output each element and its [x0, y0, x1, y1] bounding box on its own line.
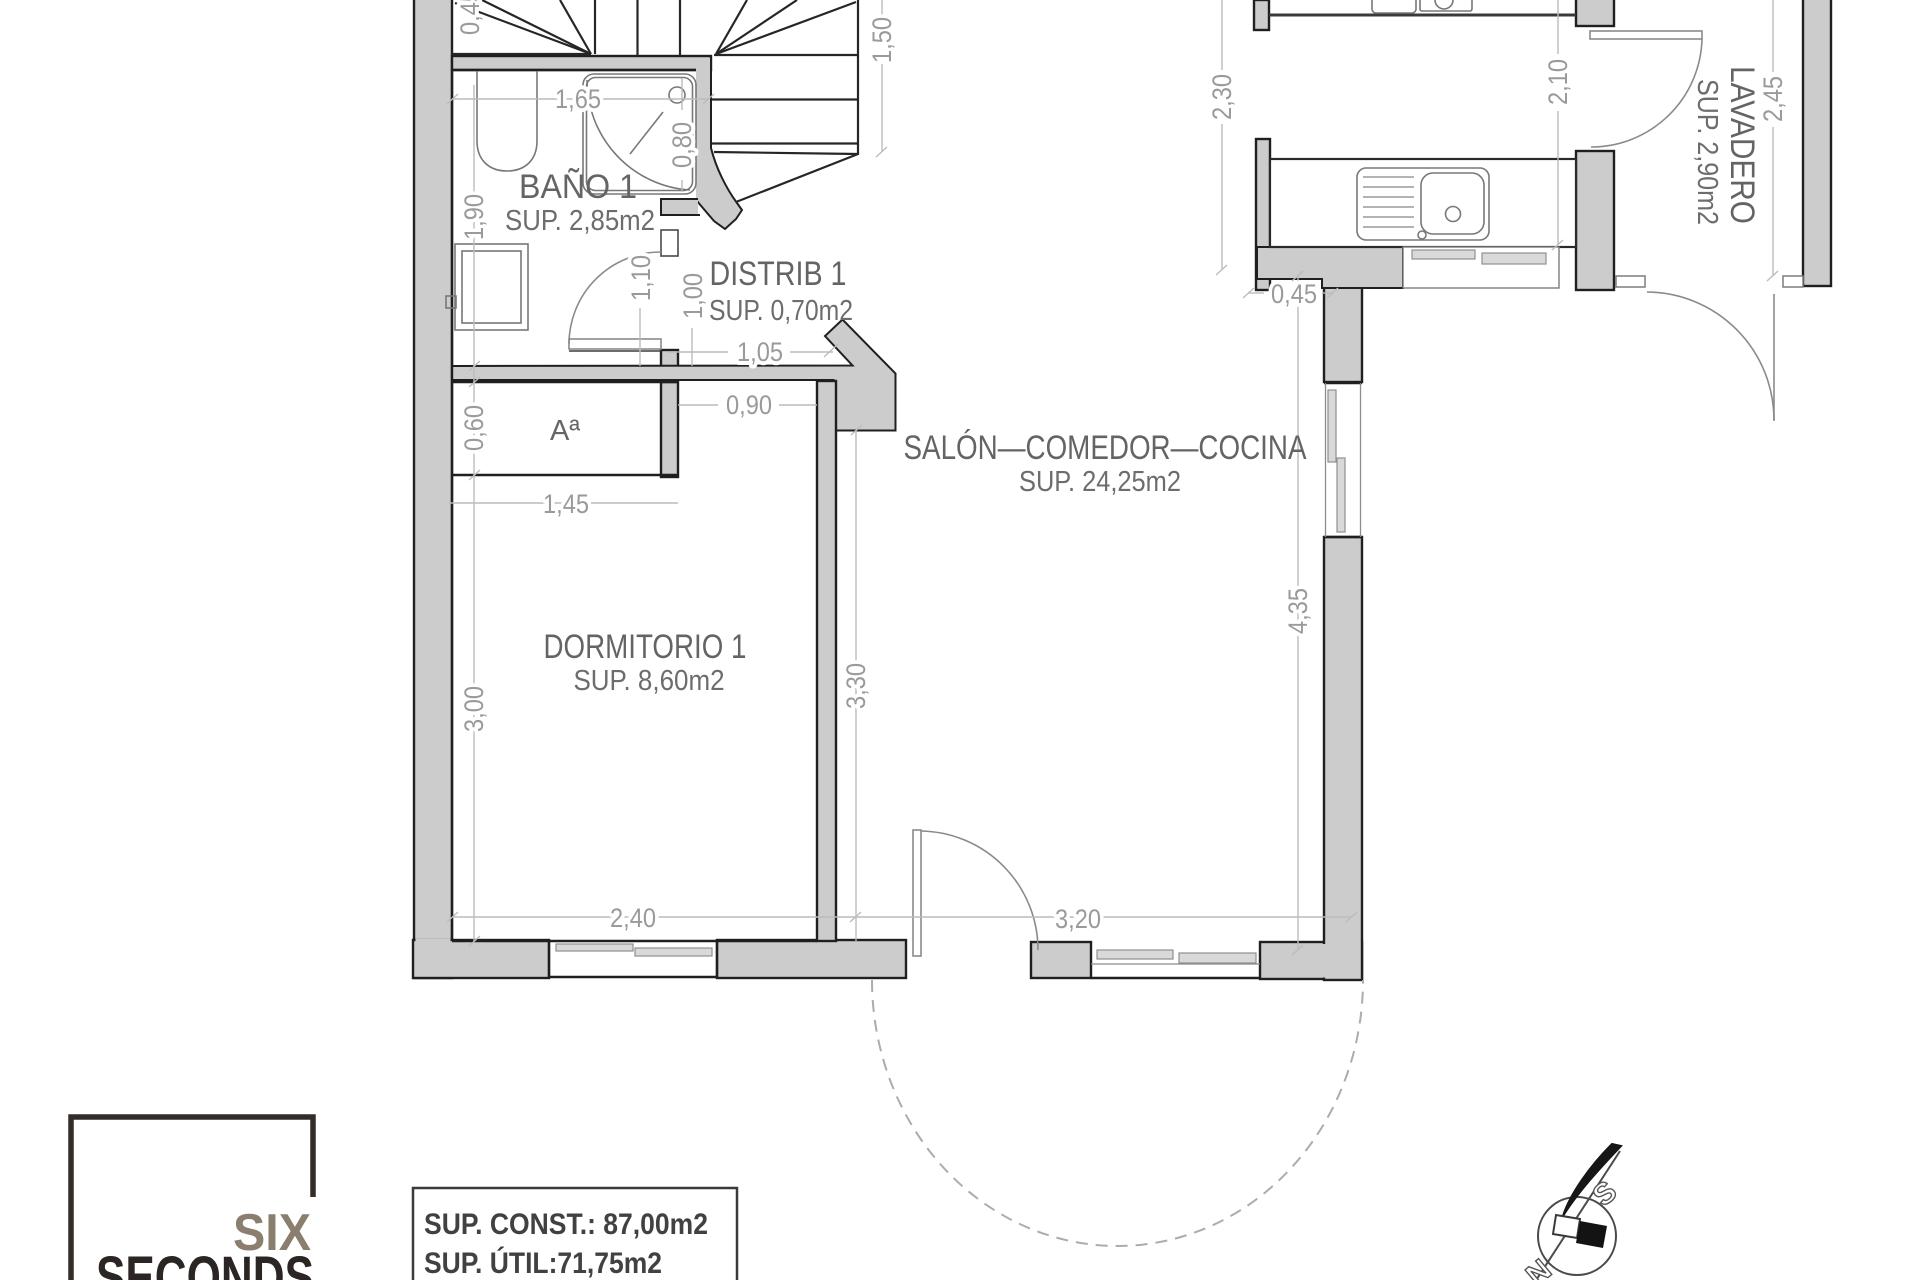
svg-text:SUP. 2,90m2: SUP. 2,90m2 — [1691, 79, 1723, 225]
svg-text:0,45: 0,45 — [1271, 279, 1317, 309]
svg-text:BAÑO 1: BAÑO 1 — [519, 168, 637, 206]
svg-text:SUP. ÚTIL:71,75m2: SUP. ÚTIL:71,75m2 — [424, 1246, 662, 1280]
svg-text:1,65: 1,65 — [555, 84, 601, 114]
svg-text:SUP. 24,25m2: SUP. 24,25m2 — [1019, 466, 1181, 498]
svg-text:SUP. 2,85m2: SUP. 2,85m2 — [505, 205, 655, 237]
svg-text:2,40: 2,40 — [610, 903, 656, 933]
svg-text:1,45: 1,45 — [543, 489, 589, 519]
svg-text:0,60: 0,60 — [459, 405, 489, 451]
svg-text:1,05: 1,05 — [737, 337, 783, 367]
svg-text:2,10: 2,10 — [1543, 59, 1573, 105]
svg-text:3,20: 3,20 — [1055, 904, 1101, 934]
svg-text:DISTRIB 1: DISTRIB 1 — [710, 255, 847, 293]
svg-text:4,35: 4,35 — [1283, 588, 1313, 634]
svg-text:SUP. 0,70m2: SUP. 0,70m2 — [709, 295, 853, 327]
svg-text:3,00: 3,00 — [459, 686, 489, 732]
svg-text:0,45: 0,45 — [455, 0, 485, 35]
svg-text:1,00: 1,00 — [678, 273, 708, 319]
svg-text:0,90: 0,90 — [726, 390, 772, 420]
svg-text:SUP. CONST.: 87,00m2: SUP. CONST.: 87,00m2 — [424, 1208, 708, 1241]
svg-text:LAVADERO: LAVADERO — [1723, 66, 1761, 224]
svg-text:DORMITORIO 1: DORMITORIO 1 — [544, 628, 747, 666]
svg-text:1,10: 1,10 — [626, 255, 656, 301]
svg-text:S: S — [1587, 1175, 1624, 1213]
svg-text:1,90: 1,90 — [459, 194, 489, 240]
svg-text:3,30: 3,30 — [841, 663, 871, 709]
svg-text:1,50: 1,50 — [867, 17, 897, 63]
svg-text:Aª: Aª — [550, 415, 580, 447]
svg-text:SUP. 8,60m2: SUP. 8,60m2 — [574, 665, 725, 697]
svg-text:SECONDS: SECONDS — [96, 1245, 314, 1280]
svg-text:2,30: 2,30 — [1207, 74, 1237, 120]
svg-text:SALÓN—COMEDOR—COCINA: SALÓN—COMEDOR—COCINA — [904, 429, 1307, 467]
svg-text:0,80: 0,80 — [667, 122, 697, 168]
svg-text:2,45: 2,45 — [1758, 76, 1788, 122]
